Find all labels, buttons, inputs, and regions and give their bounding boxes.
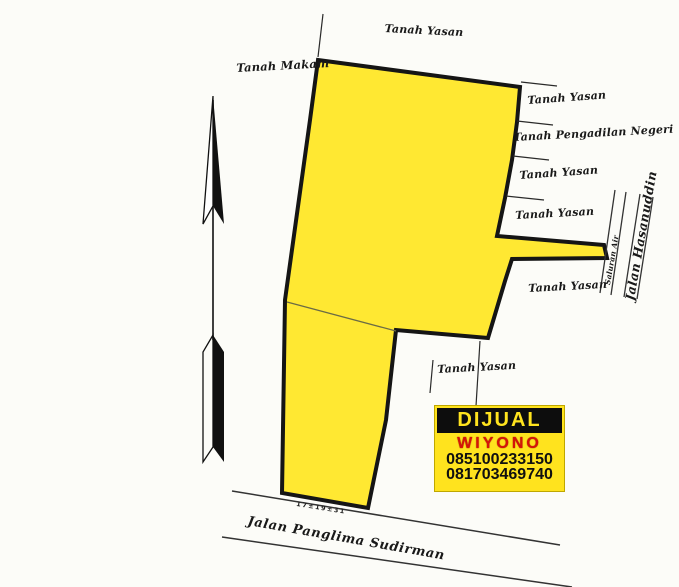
boundary-tick bbox=[318, 14, 323, 57]
boundary-tick bbox=[513, 156, 549, 160]
sign-owner: WIYONO bbox=[435, 435, 564, 452]
boundary-tick bbox=[506, 196, 544, 200]
sign-title: DIJUAL bbox=[437, 408, 562, 433]
site-plan-map: Tanah Yasan Tanah Makam Tanah Yasan Tana… bbox=[0, 0, 679, 587]
sign-phone-1: 085100233150 bbox=[435, 452, 564, 467]
boundary-tick bbox=[517, 121, 553, 125]
for-sale-sign: DIJUAL WIYONO 085100233150 081703469740 bbox=[434, 405, 565, 492]
north-arrow-icon bbox=[203, 96, 224, 462]
boundary-tick bbox=[430, 360, 433, 393]
boundary-tick bbox=[521, 82, 557, 86]
sign-phone-2: 081703469740 bbox=[435, 467, 564, 482]
south-road-line bbox=[232, 491, 560, 545]
map-drawing bbox=[0, 0, 679, 587]
